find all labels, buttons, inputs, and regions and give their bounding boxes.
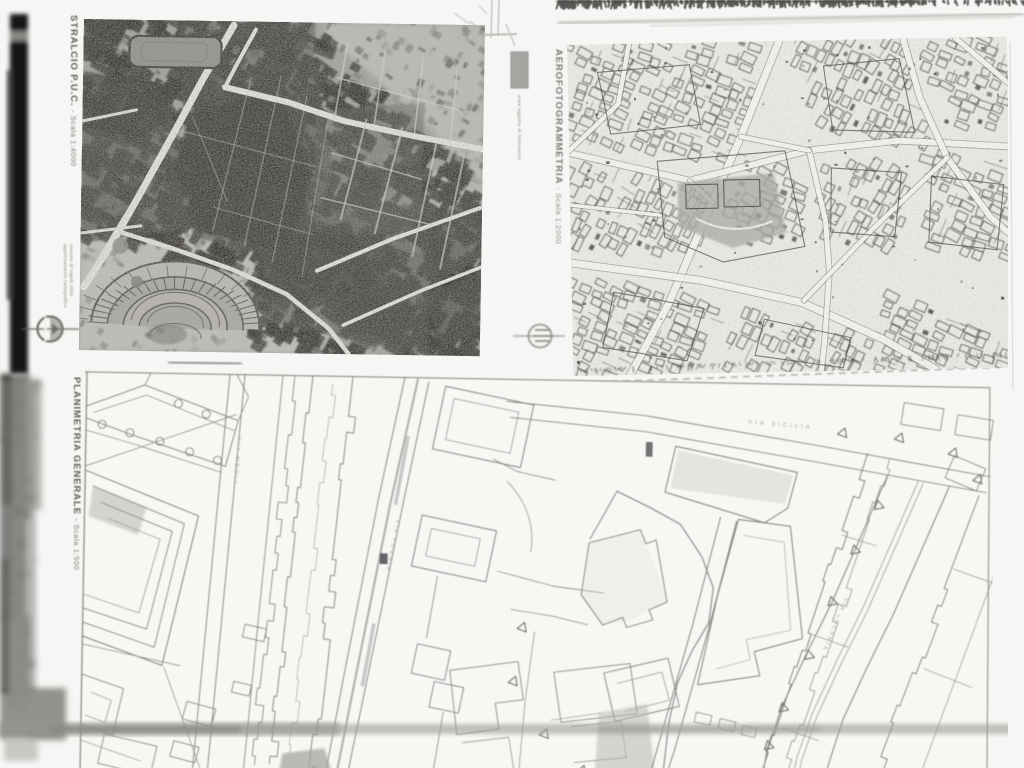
svg-text:STRALCIO P.U.C. - Scala 1:4000: STRALCIO P.U.C. - Scala 1:4000 (68, 15, 79, 167)
svg-text:aggiornamento cartografico: aggiornamento cartografico (63, 244, 68, 308)
svg-text:PLANIMETRIA GENERALE - Scala 1: PLANIMETRIA GENERALE - Scala 1:500 (71, 377, 82, 571)
svg-text:comune di napoli 2004: comune di napoli 2004 (69, 244, 74, 297)
svg-text:area oggetto di intervento: area oggetto di intervento (516, 95, 522, 160)
svg-text:AEROFOTOGRAMMETRIA - Scala 1:2: AEROFOTOGRAMMETRIA - Scala 1:2000 (553, 49, 564, 244)
